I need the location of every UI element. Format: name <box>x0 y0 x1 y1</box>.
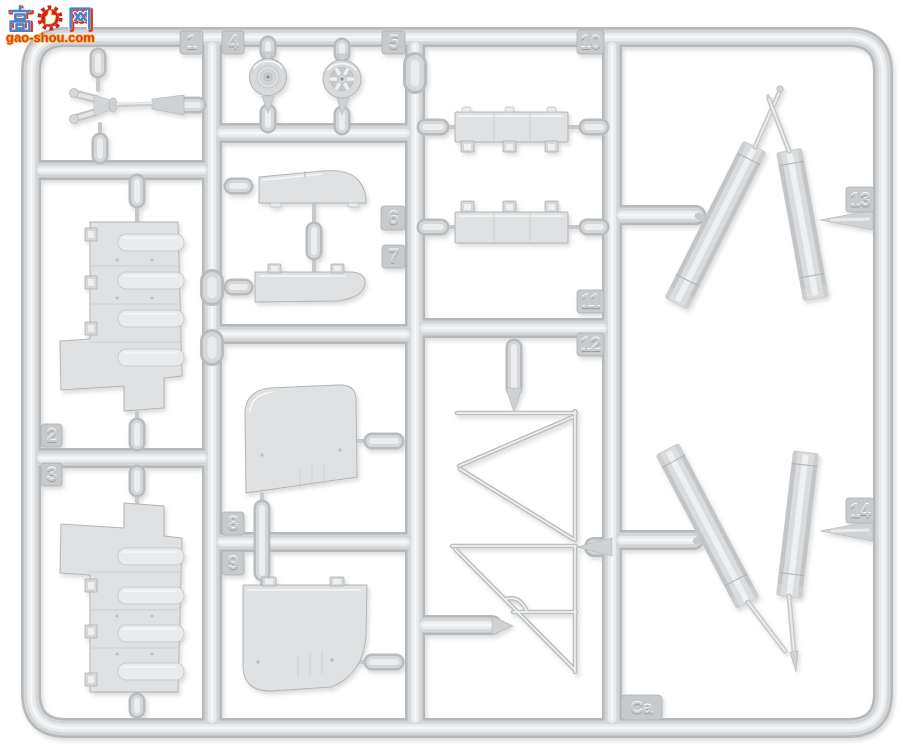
svg-text:14: 14 <box>850 502 871 523</box>
part-tag-1: 1 1 1 <box>180 31 203 55</box>
part-tag-2: 2 2 2 <box>41 424 62 448</box>
svg-text:10: 10 <box>580 33 600 54</box>
part-tow-fork <box>70 89 153 124</box>
watermark-char-wang-glyph <box>66 4 94 32</box>
part-wheel-spoked <box>323 60 361 98</box>
watermark-logo-row: 高 网 <box>6 3 95 33</box>
watermark-domain: gao-shou.com <box>6 31 95 44</box>
sprue-frame: 1 1 1 4 4 4 5 5 5 10 <box>0 0 905 753</box>
part-fender-blade-lower <box>255 264 365 302</box>
part-tag-ca: Ca Ca Ca <box>621 695 662 720</box>
svg-text:5: 5 <box>388 33 399 54</box>
watermark: 高 网 gao-shou.com <box>6 3 95 44</box>
svg-text:8: 8 <box>228 514 238 535</box>
part-tag-12: 12 12 12 <box>577 333 604 357</box>
svg-text:3: 3 <box>46 465 56 486</box>
svg-text:4: 4 <box>228 33 239 54</box>
part-tag-9: 9 9 9 <box>222 551 244 575</box>
svg-text:12: 12 <box>580 335 600 356</box>
svg-text:2: 2 <box>46 426 56 447</box>
part-seat-rail-lower <box>455 201 568 243</box>
part-fender-panel-front <box>245 385 357 493</box>
part-tag-7: 7 7 7 <box>382 245 405 269</box>
watermark-char-gao-glyph <box>6 4 34 32</box>
part-wheel-disc <box>250 59 287 96</box>
part-tag-8: 8 8 8 <box>222 512 244 536</box>
part-seat-rail-upper <box>455 107 568 152</box>
svg-text:11: 11 <box>581 292 601 313</box>
svg-text:1: 1 <box>186 33 197 54</box>
part-tag-10: 10 10 10 <box>577 30 604 55</box>
part-tag-11: 11 11 11 <box>577 290 604 314</box>
svg-text:13: 13 <box>850 191 870 212</box>
part-truss-frame-lower <box>452 546 576 672</box>
part-exhaust-tubes-upper <box>664 86 828 310</box>
part-tag-13: 13 13 13 <box>846 187 874 212</box>
part-tag-3: 3 3 3 <box>41 463 62 487</box>
part-fender-blade-upper <box>259 171 366 207</box>
svg-text:7: 7 <box>388 247 398 268</box>
part-truss-frame-upper <box>457 411 576 540</box>
part-cowl-panel-upper <box>60 222 184 411</box>
svg-text:6: 6 <box>388 209 398 230</box>
part-exhaust-tubes-lower <box>656 443 819 672</box>
part-tag-5: 5 5 5 <box>382 31 405 55</box>
part-tag-4: 4 4 4 <box>222 31 244 55</box>
part-tag-6: 6 6 6 <box>381 206 405 230</box>
sprue-body: 1 1 1 4 4 4 5 5 5 10 <box>31 30 883 728</box>
part-fender-panel-rear <box>243 577 367 691</box>
part-cowl-panel-lower <box>60 503 184 692</box>
gear-thumb-logo-icon <box>35 3 65 33</box>
part-tag-14: 14 14 14 <box>846 498 874 523</box>
sprue-photo: 1 1 1 4 4 4 5 5 5 10 <box>0 0 905 753</box>
svg-text:9: 9 <box>228 554 238 575</box>
svg-text:Ca: Ca <box>631 699 653 718</box>
